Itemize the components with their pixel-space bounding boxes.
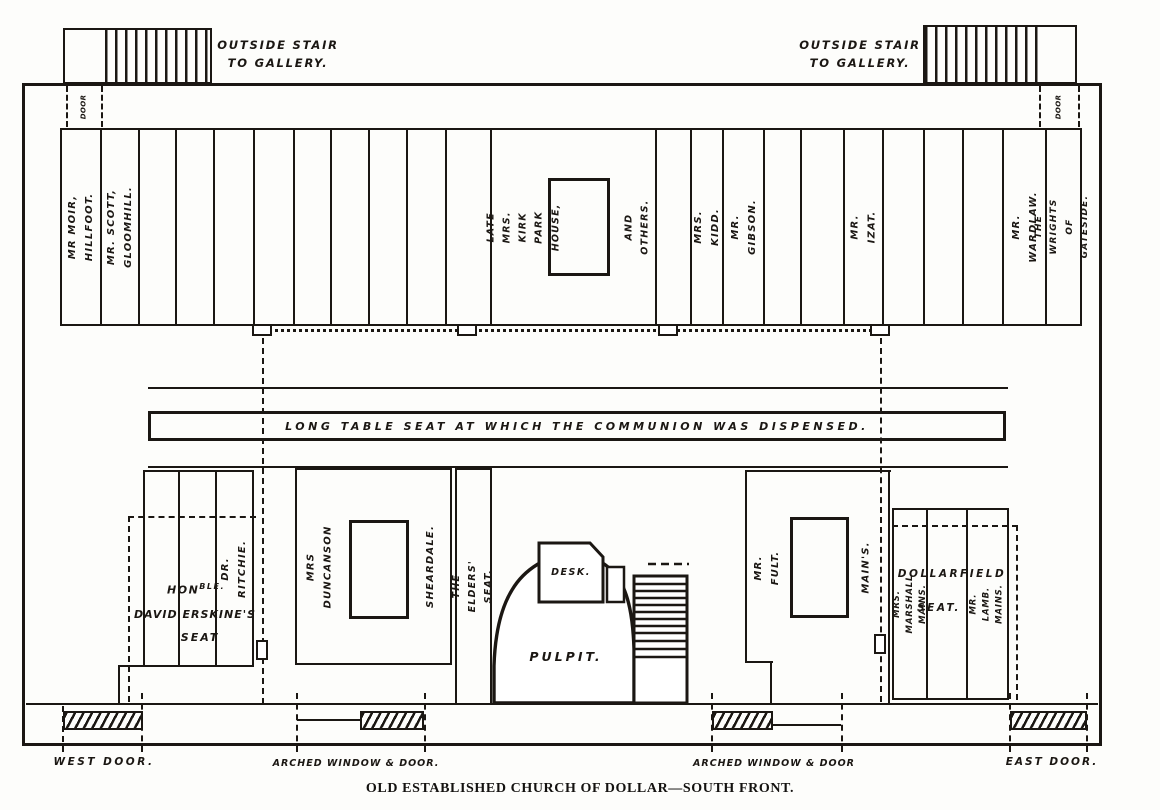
arched-door-left-hatch <box>360 711 424 730</box>
pew-blank <box>884 130 925 324</box>
pew-blank <box>255 130 295 324</box>
erskine-dashed-top <box>128 516 256 518</box>
erskine-foot-line-v <box>118 665 120 705</box>
aisle-line-upper <box>148 387 1008 389</box>
pew-wrights-gateside: THE WRIGHTS OF GATESIDE. <box>1047 130 1079 324</box>
east-door-label: EAST DOOR. <box>994 754 1110 770</box>
pew-blank <box>215 130 255 324</box>
church-floor-plan: OUTSIDE STAIR TO GALLERY. OUTSIDE STAIR … <box>0 0 1160 810</box>
pulpit-label: PULPIT. <box>510 647 622 666</box>
arched-window-door-right-label: ARCHED WINDOW & DOOR <box>688 757 860 772</box>
pew-mr-izat-label: MR. IZAT. <box>847 209 881 246</box>
pew-mr-scott: MR. SCOTT, GLOOMHILL. <box>102 130 140 324</box>
sheardale-label: SHEARDALE. <box>422 525 439 608</box>
pew-mr-izat: MR. IZAT. <box>845 130 884 324</box>
stair-treads-right <box>925 27 1043 82</box>
stair-treads-left <box>105 30 210 82</box>
pew-mr-moir-label: MR MOIR, HILLFOOT. <box>64 193 98 261</box>
west-door-label: WEST DOOR. <box>43 754 165 770</box>
tick-west-left <box>62 706 64 752</box>
pulpit-group <box>478 532 710 714</box>
outside-stair-right <box>923 25 1077 84</box>
dollarfield-dashed-right <box>1016 525 1018 700</box>
arched-window-left <box>297 719 361 721</box>
erskine-hon-line: HONBLE. <box>148 564 244 599</box>
pew-blank <box>657 130 692 324</box>
pulpit-stairs <box>634 576 687 703</box>
erskine-hon: HON <box>167 584 199 597</box>
pew-mr-gibson: MR. GIBSON. <box>724 130 765 324</box>
pew-blank <box>802 130 845 324</box>
arched-window-door-left-label: ARCHED WINDOW & DOOR. <box>268 757 444 772</box>
arched-window-right <box>772 724 841 726</box>
arched-door-right-hatch <box>712 711 773 730</box>
pew-mr-gibson-label: MR. GIBSON. <box>727 199 761 255</box>
communion-table-seat: LONG TABLE SEAT AT WHICH THE COMMUNION W… <box>148 411 1006 441</box>
tick-arched-left-b <box>424 693 426 752</box>
erskine-seat-line: SEAT <box>158 629 242 646</box>
fult-right-line <box>888 470 890 704</box>
tick-arched-right-a <box>711 693 713 752</box>
gallery-door-right-label: DOOR <box>1054 94 1066 119</box>
tick-east-left <box>1009 693 1011 752</box>
mains-label: MAIN'S. <box>858 541 875 593</box>
gallery-door-left: DOOR <box>66 86 103 127</box>
dotted-guide-line <box>262 329 884 332</box>
fult-left-line <box>745 470 747 663</box>
sheardale-label-wrap: SHEARDALE. <box>410 470 450 663</box>
guide-clamp-left-lower <box>256 640 268 660</box>
west-door-hatch <box>63 711 143 730</box>
pew-blank <box>964 130 1004 324</box>
outside-stair-left-label: OUTSIDE STAIR TO GALLERY. <box>206 37 350 73</box>
tick-arched-left-a <box>296 693 298 752</box>
communion-table-label: LONG TABLE SEAT AT WHICH THE COMMUNION W… <box>285 420 869 433</box>
pew-blank <box>765 130 802 324</box>
guide-clamp-2 <box>457 324 477 336</box>
guide-clamp-4 <box>870 324 890 336</box>
gallery-door-left-label: DOOR <box>79 94 91 119</box>
fult-step-v <box>770 661 772 704</box>
erskine-hon-sup: BLE. <box>199 582 225 591</box>
pew-mr-scott-label: MR. SCOTT, GLOOMHILL. <box>103 186 137 268</box>
pew-kirk-label: LATE MRS. KIRK PARK HOUSE, <box>484 203 565 251</box>
pew-blank <box>177 130 215 324</box>
outside-stair-left <box>63 28 212 84</box>
outside-stair-right-label: OUTSIDE STAIR TO GALLERY. <box>788 37 932 73</box>
dollarfield-dashed-top <box>892 525 1018 527</box>
erskine-foot-line-h <box>118 665 145 667</box>
dollarfield-label-line1: DOLLARFIELD <box>888 566 1016 582</box>
pew-mrs-kidd: MRS. KIDD. <box>692 130 724 324</box>
dollarfield-label-line2: SEAT. <box>903 600 975 616</box>
aisle-line-lower <box>148 466 1008 468</box>
pew-mr-moir: MR MOIR, HILLFOOT. <box>62 130 102 324</box>
pew-kirk-park-house: LATE MRS. KIRK PARK HOUSE, AND OTHERS. <box>492 130 657 324</box>
pew-mrs-kidd-label: MRS. KIDD. <box>690 208 724 246</box>
duncanson-label: MRS DUNCANSON <box>303 525 337 608</box>
tick-west-right <box>141 693 143 752</box>
fult-top-line <box>745 470 891 472</box>
figure-caption: OLD ESTABLISHED CHURCH OF DOLLAR—SOUTH F… <box>0 781 1160 797</box>
fult-label-wrap: MR. FULT. <box>748 475 786 660</box>
fult-step-h <box>745 661 773 663</box>
pew-others-label: AND OTHERS. <box>621 199 653 254</box>
pew-blank <box>332 130 370 324</box>
pew-blank <box>408 130 447 324</box>
desk-label: DESK. <box>539 566 603 581</box>
gallery-door-right: DOOR <box>1039 86 1080 127</box>
erskine-name-line: DAVID ERSKINE'S <box>126 606 264 623</box>
duncanson-table <box>349 520 409 619</box>
south-wall-inner-line <box>26 703 1098 705</box>
duncanson-pew-block: MRS DUNCANSON SHEARDALE. <box>295 468 452 665</box>
pew-blank <box>140 130 177 324</box>
pew-wrights-label: THE WRIGHTS OF GATESIDE. <box>1032 195 1093 258</box>
tick-east-right <box>1086 693 1088 752</box>
fult-table <box>790 517 849 618</box>
mains-label-wrap: MAIN'S. <box>850 478 882 656</box>
pew-blank <box>925 130 964 324</box>
duncanson-label-wrap: MRS DUNCANSON <box>299 470 341 663</box>
pew-blank <box>295 130 332 324</box>
tick-arched-right-b <box>841 693 843 752</box>
pew-blank <box>370 130 408 324</box>
guide-clamp-3 <box>658 324 678 336</box>
fult-label: MR. FULT. <box>750 549 784 587</box>
guide-clamp-1 <box>252 324 272 336</box>
east-door-hatch <box>1010 711 1087 730</box>
desk-side-bracket <box>607 567 624 602</box>
gallery-pew-row: MR MOIR, HILLFOOT. MR. SCOTT, GLOOMHILL.… <box>60 128 1082 326</box>
